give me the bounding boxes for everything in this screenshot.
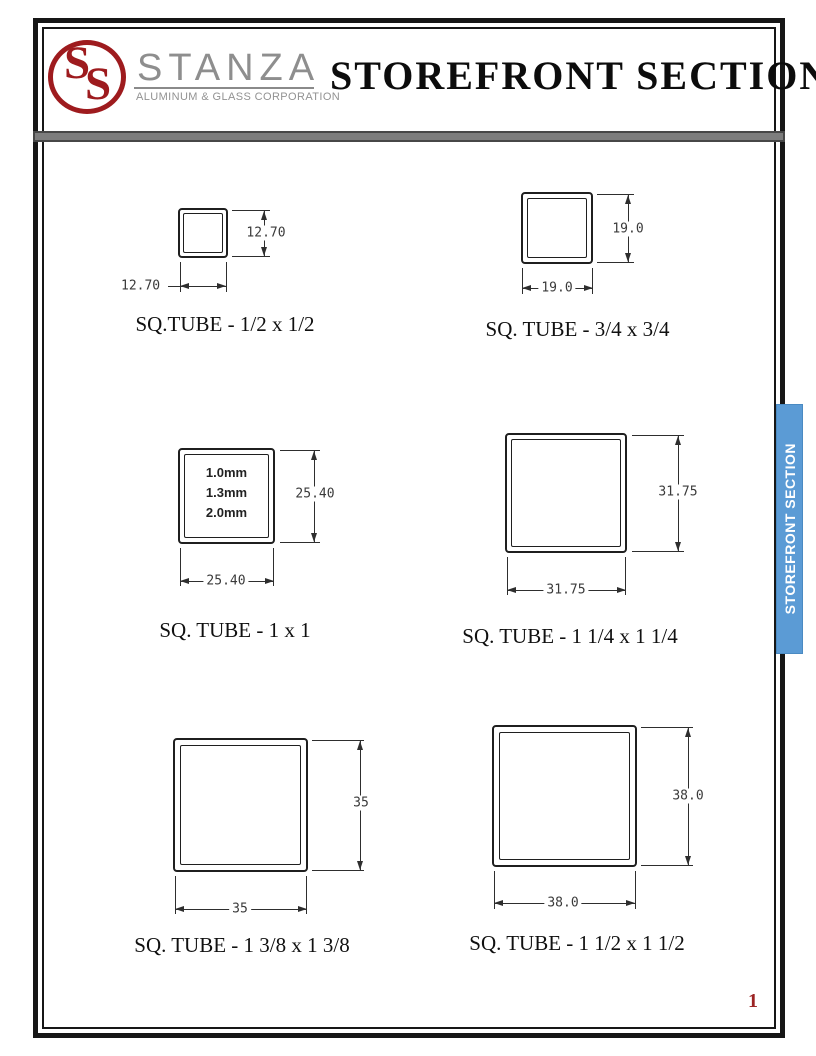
height-dimension: 25.40 bbox=[292, 487, 337, 502]
height-dimension: 12.70 bbox=[243, 226, 288, 241]
width-dimension: 31.75 bbox=[543, 583, 588, 598]
arrowhead-icon bbox=[626, 900, 635, 906]
arrowhead-icon bbox=[675, 542, 681, 551]
extension-line bbox=[226, 262, 227, 292]
tube-inner-wall bbox=[183, 213, 223, 253]
arrowhead-icon bbox=[298, 906, 307, 912]
section-side-tab-label: STOREFRONT SECTION bbox=[782, 443, 798, 614]
tube-inner-wall bbox=[180, 745, 301, 865]
tube-cross-section bbox=[505, 433, 627, 553]
tube-cross-section bbox=[521, 192, 593, 264]
brand-name: STANZA bbox=[137, 49, 320, 87]
arrowhead-icon bbox=[584, 285, 593, 291]
page-title: STOREFRONT SECTION bbox=[330, 56, 816, 96]
extension-line bbox=[632, 551, 684, 552]
height-dimension: 38.0 bbox=[669, 789, 706, 804]
thickness-options: 1.0mm 1.3mm 2.0mm bbox=[178, 463, 275, 523]
arrowhead-icon bbox=[357, 861, 363, 870]
tube-inner-wall bbox=[511, 439, 621, 547]
arrowhead-icon bbox=[494, 900, 503, 906]
diagram-caption: SQ. TUBE - 3/4 x 3/4 bbox=[450, 317, 705, 342]
extension-line bbox=[597, 262, 634, 263]
arrowhead-icon bbox=[261, 211, 267, 220]
arrowhead-icon bbox=[175, 906, 184, 912]
arrowhead-icon bbox=[522, 285, 531, 291]
extension-line bbox=[280, 542, 320, 543]
diagram-caption: SQ. TUBE - 1 1/4 x 1 1/4 bbox=[440, 624, 700, 649]
tube-inner-wall bbox=[499, 732, 630, 860]
arrowhead-icon bbox=[507, 587, 516, 593]
extension-line bbox=[641, 865, 693, 866]
arrowhead-icon bbox=[685, 856, 691, 865]
width-dimension: 35 bbox=[229, 902, 251, 917]
width-dimension: 38.0 bbox=[544, 896, 581, 911]
width-dimension: 25.40 bbox=[203, 574, 248, 589]
diagram-caption: SQ. TUBE - 1 3/8 x 1 3/8 bbox=[106, 933, 378, 958]
thickness-option: 1.0mm bbox=[178, 463, 275, 483]
height-dimension: 31.75 bbox=[655, 485, 700, 500]
arrowhead-icon bbox=[625, 253, 631, 262]
arrowhead-icon bbox=[180, 283, 189, 289]
height-dimension: 19.0 bbox=[609, 222, 646, 237]
arrowhead-icon bbox=[685, 728, 691, 737]
arrowhead-icon bbox=[265, 578, 274, 584]
arrowhead-icon bbox=[617, 587, 626, 593]
thickness-option: 2.0mm bbox=[178, 503, 275, 523]
diagram-caption: SQ.TUBE - 1/2 x 1/2 bbox=[105, 312, 345, 337]
arrowhead-icon bbox=[625, 195, 631, 204]
brand-underline bbox=[134, 87, 314, 89]
diagram-caption: SQ. TUBE - 1 x 1 bbox=[115, 618, 355, 643]
width-dimension: 19.0 bbox=[538, 281, 575, 296]
arrowhead-icon bbox=[261, 247, 267, 256]
tube-cross-section bbox=[492, 725, 637, 867]
arrowhead-icon bbox=[311, 451, 317, 460]
section-side-tab: STOREFRONT SECTION bbox=[776, 404, 803, 654]
brand-tagline: ALUMINUM & GLASS CORPORATION bbox=[136, 91, 340, 103]
header-divider bbox=[33, 131, 785, 142]
tube-inner-wall bbox=[527, 198, 587, 258]
extension-line bbox=[312, 870, 364, 871]
thickness-option: 1.3mm bbox=[178, 483, 275, 503]
arrowhead-icon bbox=[311, 533, 317, 542]
arrowhead-icon bbox=[217, 283, 226, 289]
arrowhead-icon bbox=[675, 436, 681, 445]
tube-cross-section bbox=[178, 208, 228, 258]
width-dimension: 12.70 bbox=[118, 279, 163, 294]
logo-s-icon: S bbox=[85, 61, 111, 108]
arrowhead-icon bbox=[180, 578, 189, 584]
height-dimension: 35 bbox=[350, 796, 372, 811]
arrowhead-icon bbox=[357, 741, 363, 750]
diagram-caption: SQ. TUBE - 1 1/2 x 1 1/2 bbox=[447, 931, 707, 956]
page-inner-border bbox=[42, 27, 776, 1029]
tube-cross-section bbox=[173, 738, 308, 872]
page-number: 1 bbox=[748, 990, 758, 1013]
